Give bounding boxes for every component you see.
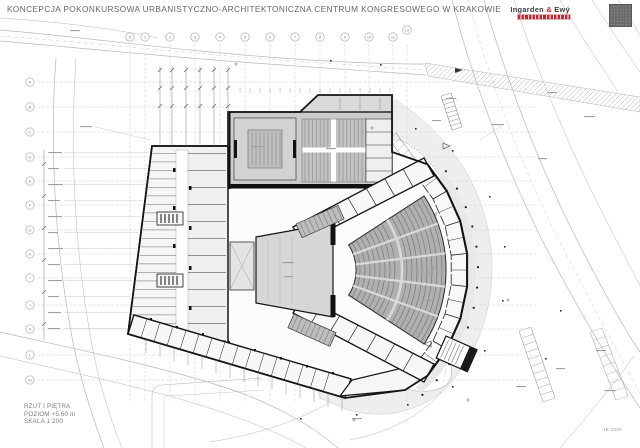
grid-row-bubble: G [26,226,34,234]
drawing-name: RZUT I PIĘTRA [24,403,75,411]
grid-row-bubble: H [26,250,34,258]
svg-text:12: 12 [405,28,410,33]
svg-text:I: I [29,276,30,281]
grid-row-bubble: M [26,376,34,384]
theatre-seating [302,119,366,182]
grid-column-bubble: 8 [316,33,324,41]
svg-text:C: C [29,130,32,135]
grid-column-bubble: 10 [365,33,373,41]
rehearsal-room [230,242,254,290]
svg-text:10: 10 [367,35,372,40]
grid-column-bubble: 11 [389,33,397,41]
grid-row-bubble: D [26,153,34,161]
grid-row-bubble: L [26,351,34,359]
sheet-stamp: IE 2006 [604,427,622,432]
theatre-stage [234,118,296,180]
grid-row-bubble: I [26,274,34,282]
grid-column-bubble: 2 [166,33,174,41]
grid-row-bubble: K [26,325,34,333]
grid-column-bubble: 7 [291,33,299,41]
architect-logo: Ingarden & Ewý [510,5,570,19]
svg-text:D: D [29,155,32,160]
corridor [176,150,188,340]
theatre-hall [228,95,392,189]
auditorium-stage [256,223,336,317]
grid-row-bubble: B [26,103,34,111]
architect-name: Ingarden & Ewý [510,5,570,14]
titleblock: RZUT I PIĘTRA POZIOM +5.60 m SKALA 1:200 [24,403,75,426]
svg-text:M: M [28,378,31,383]
svg-text:G: G [28,228,31,233]
grid-column-bubble: 1 [141,33,149,41]
ie-stamp-logo [609,4,632,27]
grid-column-bubble: 3 [191,33,199,41]
grid-column-bubble: 9 [341,33,349,41]
grid-column-bubble: 6 [266,33,274,41]
svg-text:E: E [29,179,32,184]
level-label: POZIOM +5.60 m [24,411,75,419]
backstage-rooms [366,119,392,182]
sheet-title: KONCEPCJA POKONKURSOWA URBANISTYCZNO-ARC… [7,4,501,14]
svg-text:K: K [29,327,32,332]
grid-row-bubble: E [26,177,34,185]
grid-column-bubble: 0 [126,33,134,41]
grid-row-bubble: J [26,301,34,309]
grid-row-bubble: C [26,128,34,136]
grid-column-bubble: 5 [241,33,249,41]
stairs-se [519,327,555,402]
grid-column-bubble: 12 [403,26,411,34]
grid-row-label: A [29,80,32,85]
svg-text:H: H [29,252,32,257]
svg-text:B: B [29,105,32,110]
grid-row-bubble: F [26,201,34,209]
scale-label: SKALA 1:200 [24,418,75,426]
drawing-sheet: { "header": { "title": "KONCEPCJA POKONK… [0,0,640,448]
svg-text:J: J [29,303,31,308]
site-plan-drawing: 0 1 2 3 4 5 6 7 [0,0,640,448]
logo-color-bar [518,15,570,19]
grid-row-bubble: A [26,78,34,86]
grid-column-bubble: 4 [216,33,224,41]
